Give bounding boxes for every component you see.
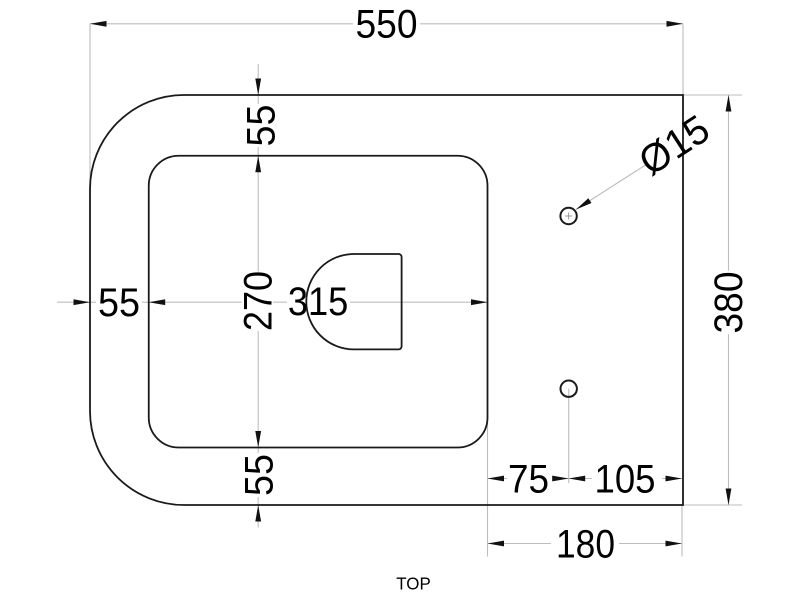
svg-text:55: 55 [238, 454, 282, 496]
svg-text:315: 315 [288, 280, 349, 324]
svg-text:380: 380 [707, 272, 751, 334]
svg-text:TOP: TOP [396, 574, 431, 594]
svg-text:105: 105 [595, 457, 656, 501]
svg-text:180: 180 [556, 522, 615, 566]
svg-text:55: 55 [98, 281, 140, 325]
svg-text:55: 55 [239, 105, 283, 147]
svg-text:550: 550 [356, 3, 418, 47]
svg-text:75: 75 [508, 457, 549, 501]
svg-text:Ø15: Ø15 [631, 107, 717, 184]
svg-text:270: 270 [237, 271, 281, 331]
